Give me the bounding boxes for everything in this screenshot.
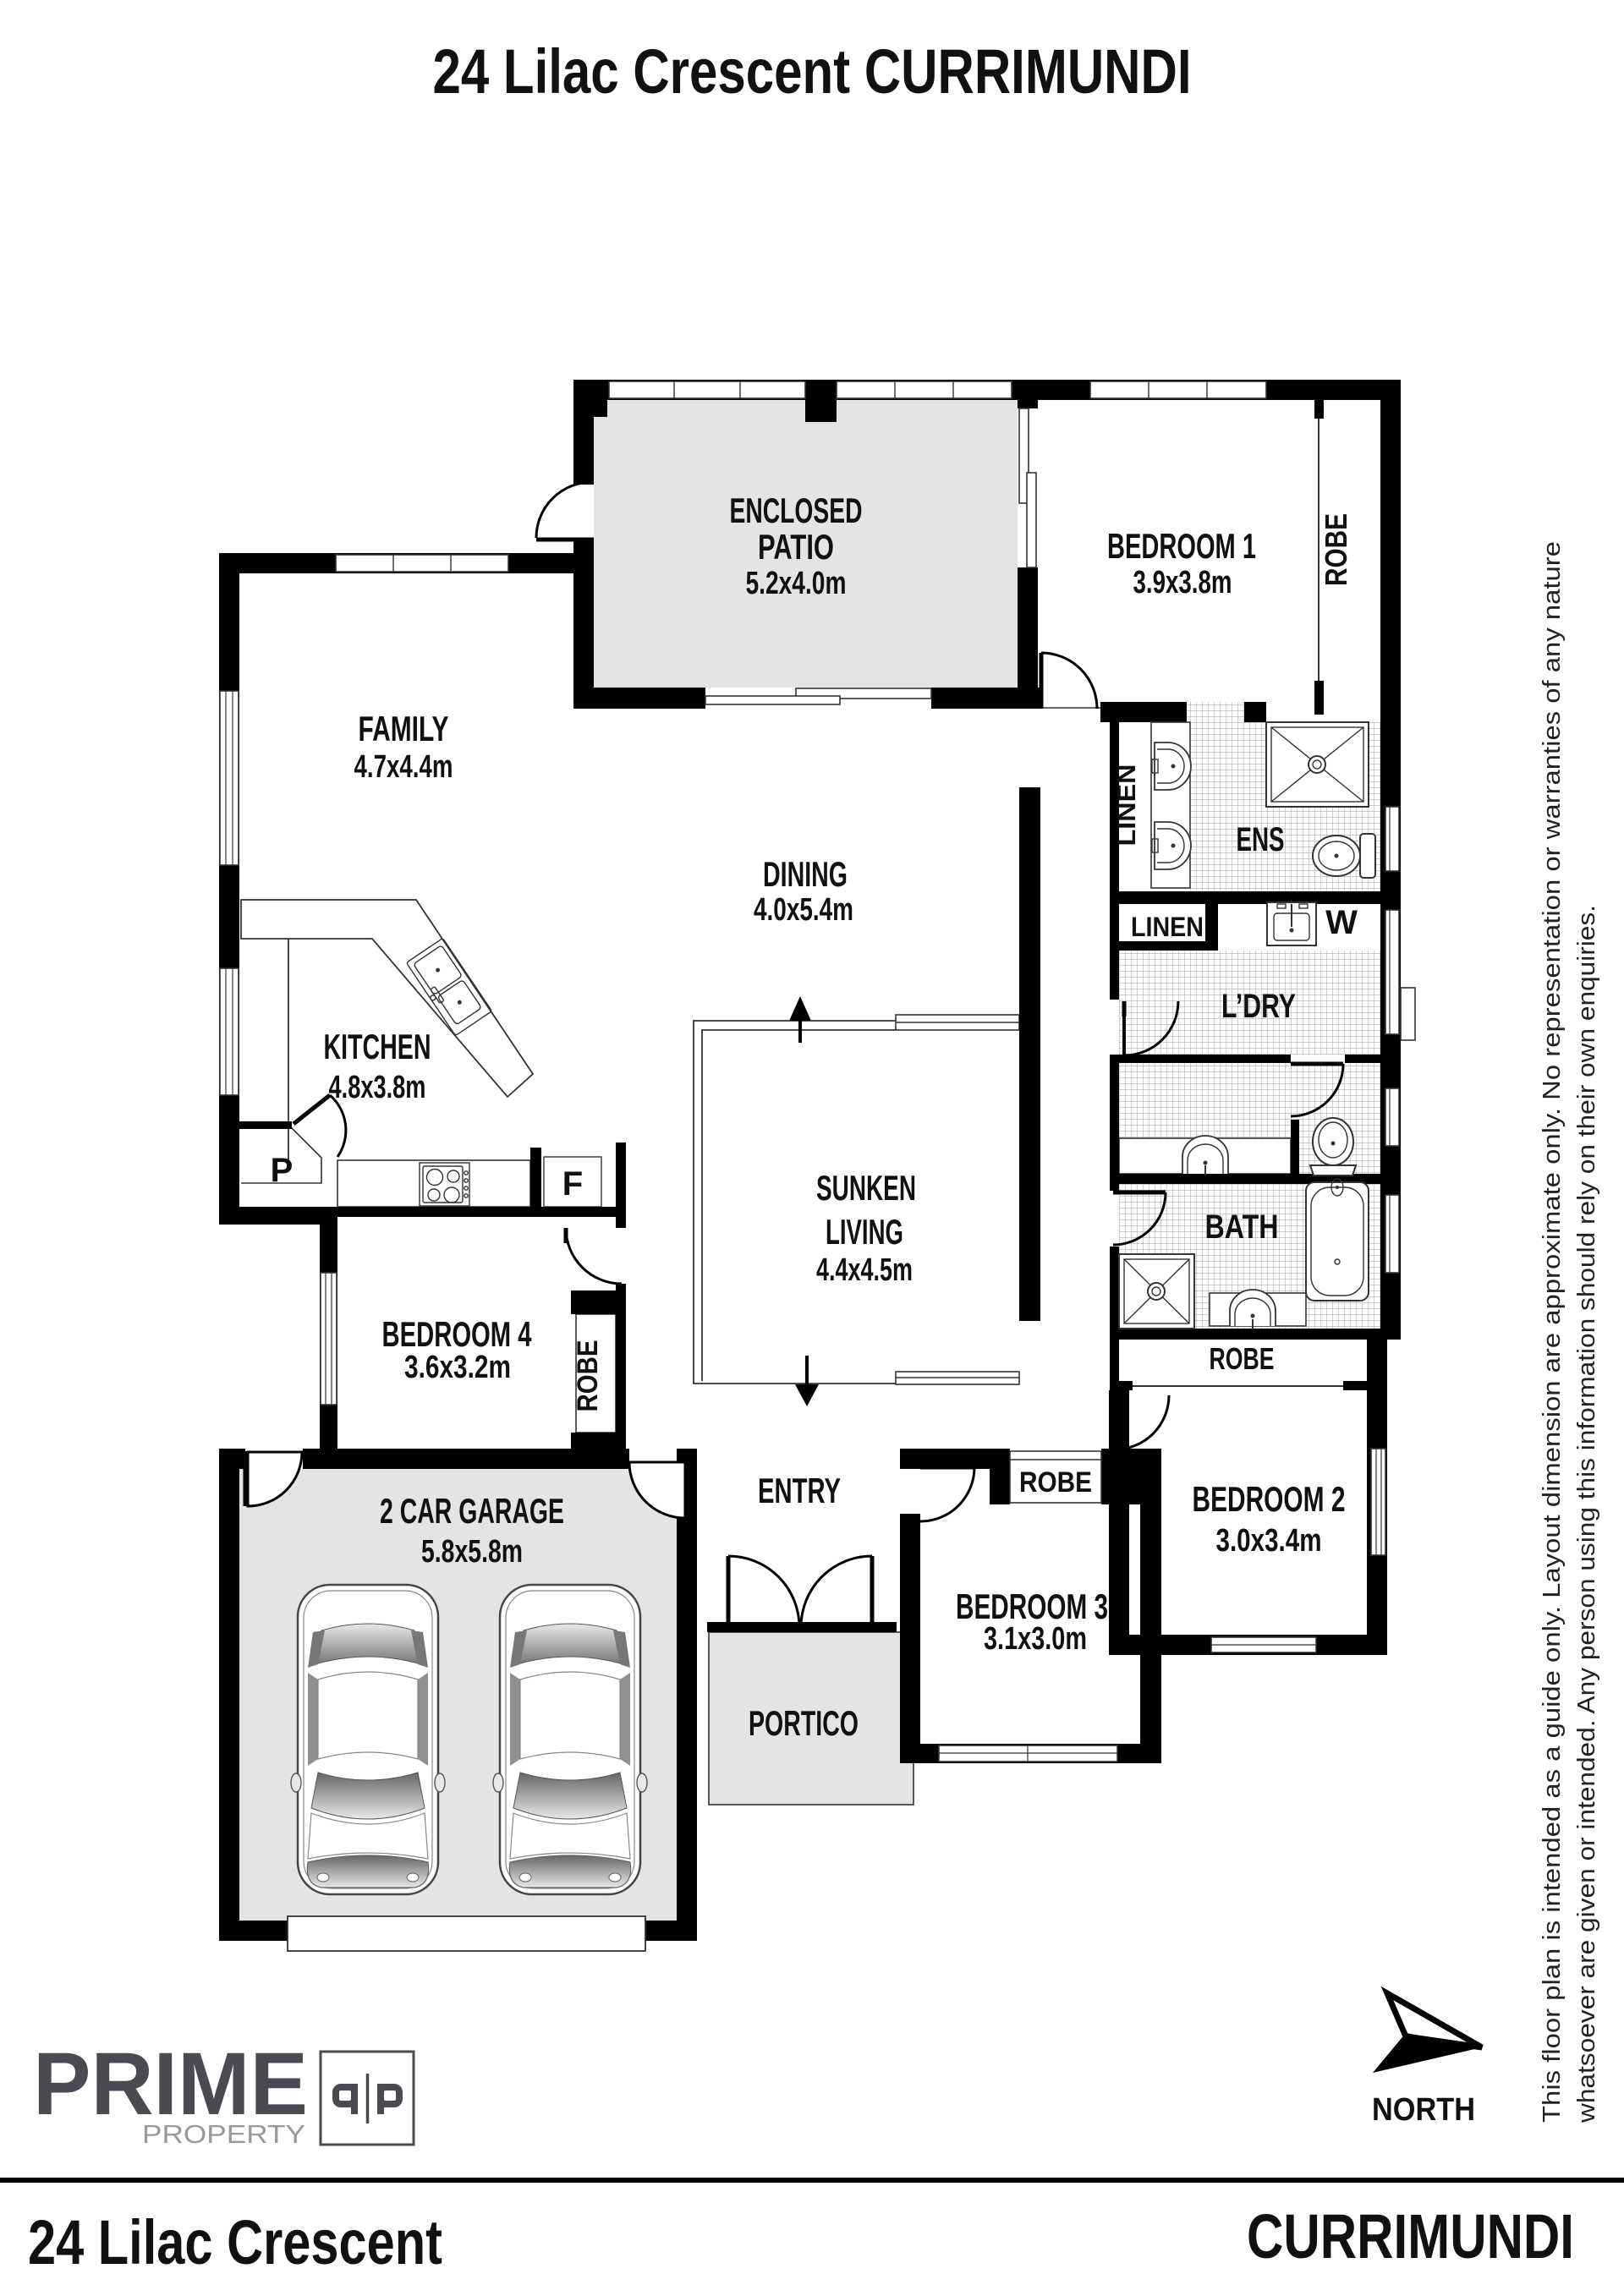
svg-text:W: W: [1325, 904, 1358, 941]
svg-text:SUNKEN: SUNKEN: [816, 1168, 916, 1208]
svg-text:3.0x3.4m: 3.0x3.4m: [1216, 1523, 1322, 1559]
svg-text:3.1x3.0m: 3.1x3.0m: [984, 1621, 1087, 1657]
svg-text:KITCHEN: KITCHEN: [324, 1027, 431, 1066]
svg-text:4.0x5.4m: 4.0x5.4m: [754, 892, 853, 928]
svg-text:DINING: DINING: [763, 854, 848, 894]
svg-text:LINEN: LINEN: [1113, 764, 1141, 847]
svg-text:PORTICO: PORTICO: [749, 1703, 859, 1743]
svg-text:5.8x5.8m: 5.8x5.8m: [421, 1534, 523, 1570]
svg-text:This floor plan is intended as: This floor plan is intended as a guide o…: [1539, 541, 1566, 2123]
svg-text:BEDROOM 3: BEDROOM 3: [956, 1586, 1108, 1626]
svg-text:P: P: [271, 1152, 294, 1189]
svg-text:4.4x4.5m: 4.4x4.5m: [816, 1252, 913, 1288]
svg-text:FAMILY: FAMILY: [359, 709, 449, 748]
svg-text:BEDROOM 2: BEDROOM 2: [1193, 1479, 1346, 1519]
svg-text:whatsoever are given or intend: whatsoever are given or intended. Any pe…: [1573, 905, 1600, 2123]
svg-text:BEDROOM 1: BEDROOM 1: [1107, 526, 1256, 566]
svg-text:2 CAR GARAGE: 2 CAR GARAGE: [380, 1491, 564, 1531]
svg-text:4.8x3.8m: 4.8x3.8m: [329, 1070, 426, 1105]
svg-text:ROBE: ROBE: [1019, 1466, 1092, 1499]
svg-text:ENS: ENS: [1237, 821, 1285, 858]
svg-text:5.2x4.0m: 5.2x4.0m: [746, 566, 847, 601]
svg-text:PROPERTY: PROPERTY: [142, 2119, 305, 2149]
svg-text:4.7x4.4m: 4.7x4.4m: [354, 749, 453, 785]
svg-text:CURRIMUNDI: CURRIMUNDI: [1247, 2201, 1574, 2271]
svg-text:3.9x3.8m: 3.9x3.8m: [1133, 565, 1232, 600]
svg-text:LIVING: LIVING: [826, 1212, 903, 1252]
svg-text:ENCLOSED: ENCLOSED: [730, 490, 863, 530]
svg-text:PATIO: PATIO: [758, 527, 834, 567]
svg-text:ROBE: ROBE: [1210, 1341, 1275, 1376]
svg-text:L’DRY: L’DRY: [1221, 988, 1296, 1025]
svg-text:24 Lilac Crescent CURRIMUNDI: 24 Lilac Crescent CURRIMUNDI: [433, 36, 1192, 107]
svg-text:24 Lilac Crescent: 24 Lilac Crescent: [28, 2207, 442, 2277]
svg-text:NORTH: NORTH: [1372, 2092, 1475, 2128]
svg-text:ENTRY: ENTRY: [758, 1471, 841, 1510]
svg-text:LINEN: LINEN: [1131, 912, 1204, 942]
svg-text:BATH: BATH: [1205, 1208, 1279, 1246]
svg-text:BEDROOM 4: BEDROOM 4: [382, 1314, 532, 1354]
svg-text:3.6x3.2m: 3.6x3.2m: [404, 1350, 511, 1385]
svg-text:ROBE: ROBE: [572, 1340, 604, 1412]
svg-text:F: F: [562, 1165, 583, 1203]
svg-text:ROBE: ROBE: [1319, 513, 1353, 586]
